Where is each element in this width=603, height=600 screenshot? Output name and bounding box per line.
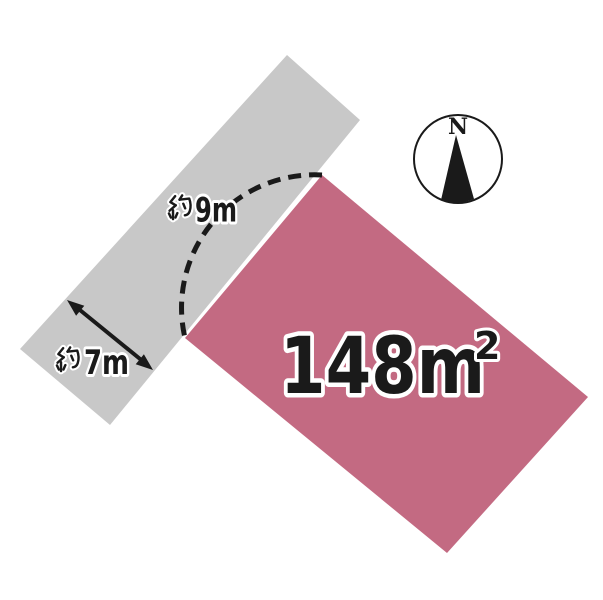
compass: N — [414, 114, 502, 203]
compass-north-label: N — [448, 114, 468, 140]
plot-area-value: 148m — [280, 322, 485, 412]
diagram-canvas: 9m 7m 148m 2 N — [0, 0, 603, 600]
plot-area-superscript: 2 — [474, 324, 500, 368]
plot-area-label: 148m 2 — [280, 322, 500, 412]
frontage-label-text: 9m — [195, 191, 237, 231]
land-plot-diagram: 9m 7m 148m 2 N — [0, 0, 603, 600]
road-width-label-text: 7m — [84, 343, 129, 383]
